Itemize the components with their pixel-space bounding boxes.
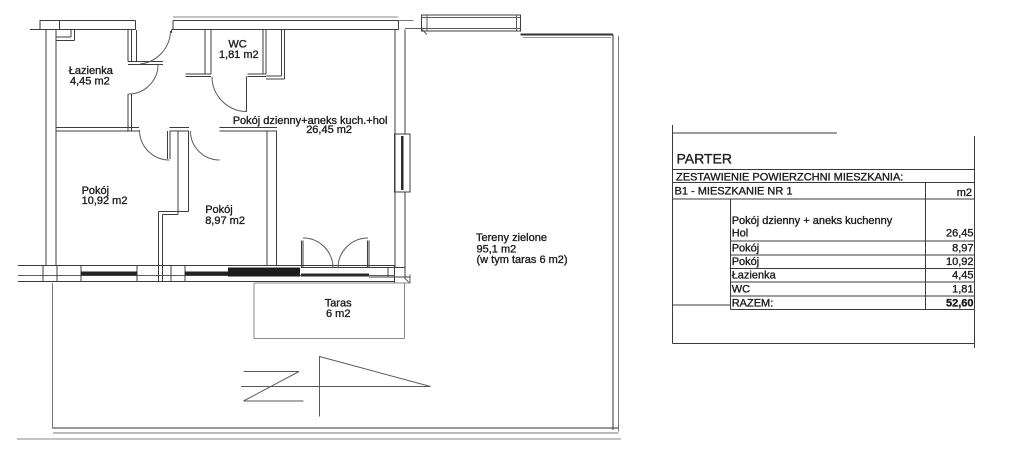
svg-text:Pokój: Pokój [732, 242, 760, 254]
svg-text:Łazienka: Łazienka [732, 270, 777, 282]
svg-text:1,81: 1,81 [952, 283, 973, 295]
svg-text:m2: m2 [957, 187, 972, 199]
svg-text:ZESTAWIENIE POWIERZCHNI MIESZK: ZESTAWIENIE POWIERZCHNI MIESZKANIA: [676, 172, 903, 184]
svg-text:10,92 m2: 10,92 m2 [82, 195, 128, 207]
svg-text:6 m2: 6 m2 [326, 308, 350, 320]
svg-text:52,60: 52,60 [946, 298, 974, 310]
svg-text:4,45 m2: 4,45 m2 [70, 76, 110, 88]
svg-text:Tereny zielone: Tereny zielone [476, 232, 547, 244]
svg-text:Pokój dzienny + aneks kuchenny: Pokój dzienny + aneks kuchenny [732, 215, 893, 227]
svg-text:1,81 m2: 1,81 m2 [219, 49, 259, 61]
svg-text:8,97: 8,97 [952, 242, 973, 254]
svg-text:Pokój: Pokój [732, 256, 760, 268]
svg-text:26,45: 26,45 [946, 227, 974, 239]
svg-text:RAZEM:: RAZEM: [732, 298, 774, 310]
svg-text:B1 - MIESZKANIE NR 1: B1 - MIESZKANIE NR 1 [675, 186, 793, 198]
svg-text:WC: WC [732, 283, 750, 295]
svg-text:10,92: 10,92 [946, 256, 974, 268]
svg-text:8,97 m2: 8,97 m2 [205, 215, 245, 227]
svg-text:(w tym taras 6 m2): (w tym taras 6 m2) [477, 254, 568, 266]
svg-text:26,45 m2: 26,45 m2 [306, 124, 352, 136]
svg-text:Hol: Hol [732, 227, 749, 239]
svg-text:PARTER: PARTER [677, 151, 733, 167]
svg-text:4,45: 4,45 [952, 270, 973, 282]
